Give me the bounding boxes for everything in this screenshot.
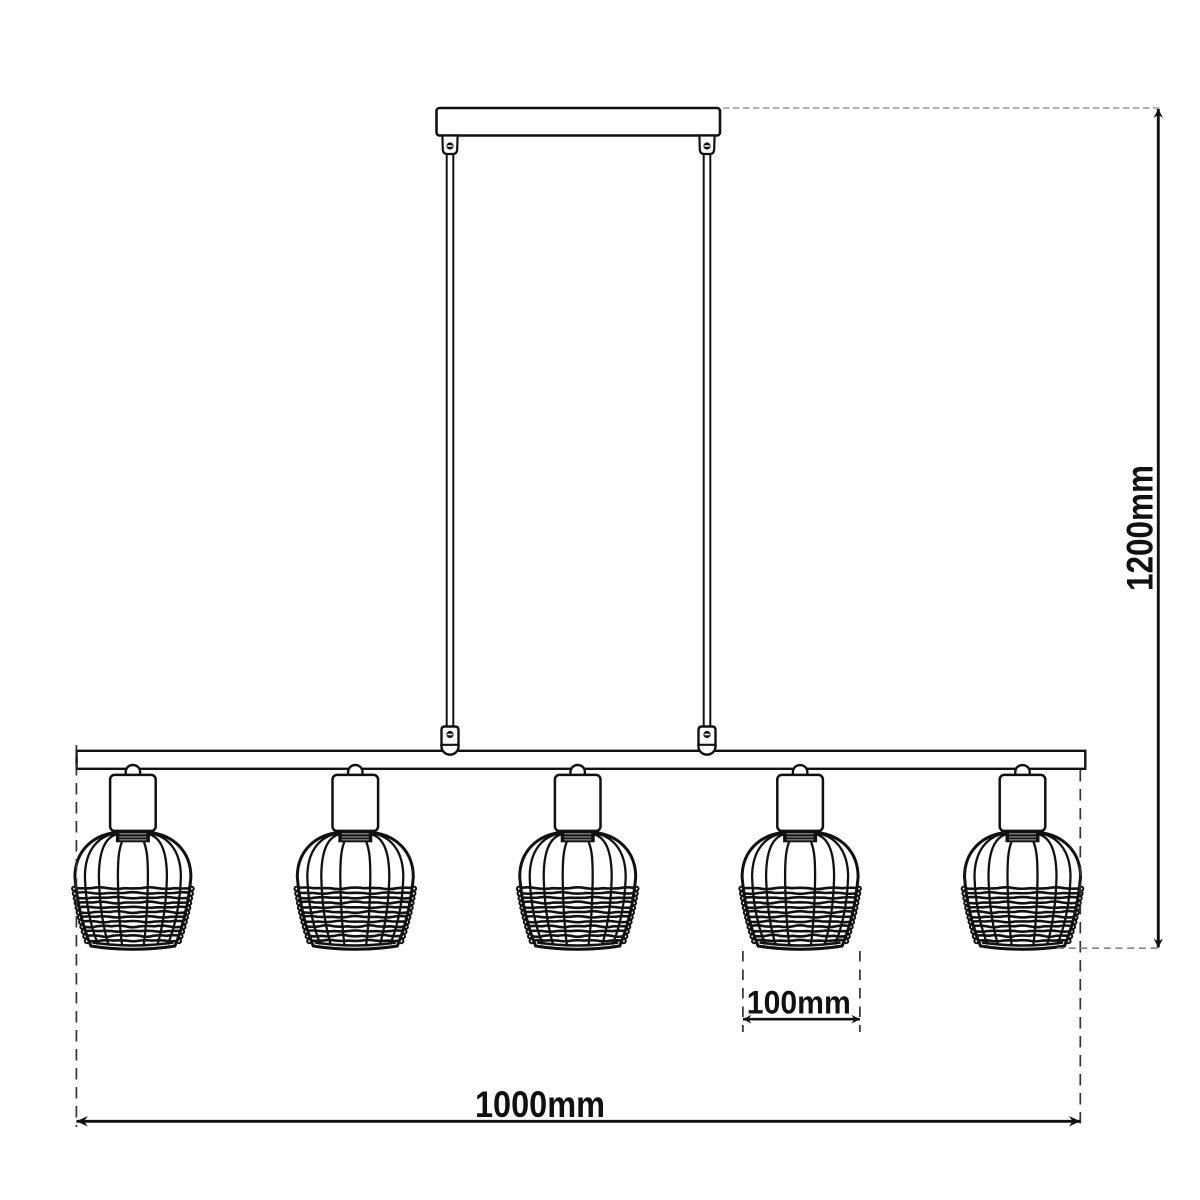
svg-text:1200mm: 1200mm [1119,465,1161,591]
svg-text:1000mm: 1000mm [475,1084,605,1125]
svg-text:100mm: 100mm [747,985,851,1021]
